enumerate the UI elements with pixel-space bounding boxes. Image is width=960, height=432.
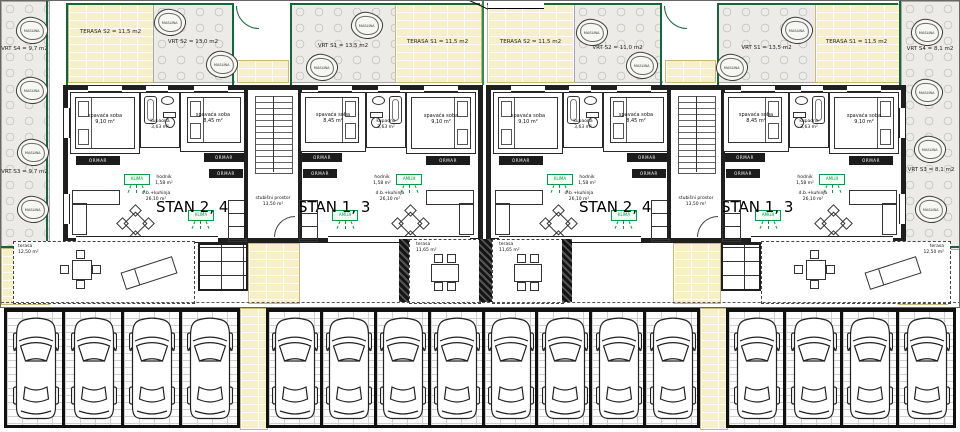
bedroom-large-label: spavaća soba9,10 m²	[830, 113, 898, 125]
car-icon	[488, 317, 534, 421]
staircase-core: stubišni prostor13,50 m²	[667, 90, 725, 238]
parking-stall	[377, 312, 431, 425]
wardrobe: ORMAR	[499, 156, 543, 165]
table-icon	[431, 264, 459, 282]
window	[801, 85, 823, 92]
stairs-icon	[255, 96, 293, 174]
hall-label: hodnik1,58 m²	[567, 175, 607, 186]
garden-label: VRT S4 = 9,7 m2	[1, 46, 48, 52]
boundary-label: MEĐA	[488, 0, 544, 9]
parking-stall	[182, 312, 237, 425]
wardrobe: ORMAR	[204, 153, 244, 162]
hedge	[291, 3, 480, 5]
garden-label: VRT S4 = 8,1 m2	[901, 46, 959, 52]
car-icon	[272, 317, 318, 421]
window	[847, 85, 881, 92]
car-icon	[847, 317, 893, 421]
entry-path	[248, 243, 300, 304]
sink-icon	[584, 96, 597, 105]
staircase-label: stubišni prostor13,50 m²	[248, 196, 298, 208]
party-wall-stub	[479, 239, 492, 302]
boundary-line	[482, 1, 484, 85]
parking-stall	[899, 312, 953, 425]
parking-stall	[538, 312, 592, 425]
bedroom-small-label: spavaća soba8,45 m²	[604, 112, 668, 124]
building-2: spavaća soba9,10 m² kupaona3,63 m² spava…	[486, 85, 906, 243]
apartment-stan-2-4: spavaća soba9,10 m² kupaona3,63 m² spava…	[491, 90, 671, 238]
bathroom-label: kupaona3,63 m²	[564, 119, 602, 131]
courtyard-b2	[661, 4, 718, 81]
car-icon	[187, 317, 233, 421]
garden-label: VRT S3 = 9,7 m2	[0, 169, 49, 175]
wardrobe: ORMAR	[632, 169, 666, 178]
bathroom-label: kupaona3,63 m²	[141, 119, 179, 131]
parking-stall	[843, 312, 900, 425]
terrace-label: TERASA S2 = 11,5 m2	[487, 39, 574, 45]
parking-stall	[786, 312, 843, 425]
bathroom-label: kupaona3,63 m²	[367, 119, 405, 131]
parking-stall	[431, 312, 485, 425]
bathroom: kupaona3,63 m²	[140, 92, 180, 148]
window	[146, 85, 168, 92]
courtyard-b1	[233, 4, 291, 81]
car-icon	[650, 317, 696, 421]
table-icon	[514, 264, 542, 282]
car-icon	[596, 317, 642, 421]
bedroom-small: spavaća soba8,45 m²	[300, 92, 366, 152]
wardrobe: ORMAR	[303, 169, 337, 178]
bedroom-small-label: spavaća soba8,45 m²	[181, 112, 245, 124]
garden-label: VRT S2 = 13,0 m2	[153, 39, 233, 45]
bedroom-large: spavaća soba9,10 m²	[493, 92, 563, 154]
sink-icon	[372, 96, 385, 105]
gate-arc	[664, 6, 687, 29]
table-icon	[806, 260, 826, 280]
sink-icon	[161, 96, 174, 105]
hedge	[660, 3, 662, 85]
staircase-core: stubišni prostor13,50 m²	[244, 90, 302, 238]
sofa-icon	[495, 203, 510, 235]
bathroom: kupaona3,63 m²	[789, 92, 829, 148]
wardrobe: ORMAR	[209, 169, 243, 178]
bedroom-small: spavaća soba8,45 m²	[723, 92, 789, 152]
sofa-icon	[459, 203, 474, 235]
terrace-terasa-s2-b1	[68, 4, 155, 83]
terrace-inner-left: terasa11,65 m²	[409, 239, 481, 304]
terrace-label: terasa11,65 m²	[416, 242, 437, 253]
kitchen-counter-icon	[299, 200, 318, 242]
parking-stall	[485, 312, 539, 425]
building-1: spavaća soba9,10 m² kupaona3,63 m² spava…	[63, 85, 483, 243]
car-icon	[904, 317, 950, 421]
ac-unit: KLIMA	[547, 174, 573, 185]
parking-group	[726, 308, 956, 428]
apartment-stan-1-3: spavaća soba9,10 m² kupaona3,63 m² spava…	[298, 90, 478, 238]
dining-table-icon	[541, 206, 575, 240]
terrace-label: terasa11,65 m²	[499, 242, 520, 253]
apartment-stan-1-3: spavaća soba9,10 m² kupaona3,63 m² spava…	[721, 90, 901, 238]
dining-table-icon	[817, 206, 851, 240]
window	[424, 85, 458, 92]
car-icon	[13, 317, 59, 421]
door-arc	[274, 216, 295, 237]
car-icon	[129, 317, 175, 421]
parking-walkway	[240, 308, 268, 430]
parking-stall	[729, 312, 786, 425]
garden-label: VRT S1 = 13,5 m2	[718, 45, 815, 51]
wardrobe: ORMAR	[302, 153, 342, 162]
kitchen-counter-icon	[722, 200, 741, 242]
sofa-icon	[72, 203, 87, 235]
bedroom-large-label: spavaća soba9,10 m²	[494, 113, 562, 125]
window	[617, 85, 651, 92]
terrace-label: TERASA S2 = 11,5 m2	[68, 29, 153, 35]
car-icon	[326, 317, 372, 421]
ac-unit: KLIMA	[124, 174, 150, 185]
entry-path	[673, 243, 721, 304]
site-dashed-line	[1, 302, 960, 303]
terrace-label: terasa12,50 m²	[18, 244, 39, 255]
wardrobe: ORMAR	[426, 156, 470, 165]
parking-walkway	[700, 308, 728, 430]
terrace-inner-right: terasa11,65 m²	[492, 239, 564, 304]
hedge	[718, 3, 898, 5]
bedroom-small: spavaća soba8,45 m²	[180, 92, 246, 152]
car-icon	[791, 317, 837, 421]
wardrobe: ORMAR	[627, 153, 667, 162]
bedroom-small: spavaća soba8,45 m²	[603, 92, 669, 152]
window	[569, 85, 591, 92]
parking-stall	[269, 312, 323, 425]
hedge	[66, 3, 68, 85]
wall-stub	[399, 239, 409, 302]
terrace-outer-right: terasa12,50 m²	[761, 241, 951, 304]
window	[63, 194, 70, 224]
floor-plan: VRT S4 = 9,7 m2 VRT S3 = 9,7 m2 TERASA S…	[0, 0, 960, 432]
wall-stub	[562, 239, 572, 302]
door-arc	[697, 216, 718, 237]
bathroom: kupaona3,63 m²	[366, 92, 406, 148]
car-icon	[434, 317, 480, 421]
window	[899, 194, 906, 224]
terrace-label: TERASA S1 = 11,5 m2	[395, 39, 480, 45]
parking-group	[266, 308, 700, 428]
staircase-label: stubišni prostor13,50 m²	[671, 196, 721, 208]
bedroom-small-label: spavaća soba8,45 m²	[724, 112, 788, 124]
parking-stall	[592, 312, 646, 425]
apartment-stan-2-4: spavaća soba9,10 m² kupaona3,63 m² spava…	[68, 90, 248, 238]
parking-stall	[7, 312, 65, 425]
entry-rooms	[721, 243, 761, 291]
sink-icon	[795, 96, 808, 105]
lounge-icon	[865, 256, 922, 290]
table-icon	[72, 260, 92, 280]
hedge	[290, 3, 292, 85]
window	[88, 85, 122, 92]
wardrobe: ORMAR	[76, 156, 120, 165]
terrace-label: terasa12,50 m²	[923, 244, 944, 255]
window	[511, 85, 545, 92]
hall-label: hodnik1,58 m²	[144, 175, 184, 186]
parking-stall	[646, 312, 697, 425]
garden-label: VRT S3 = 8,1 m2	[903, 167, 959, 173]
window	[378, 85, 400, 92]
wardrobe: ORMAR	[726, 169, 760, 178]
hedge	[68, 3, 233, 5]
ac-unit: KLIMA	[819, 174, 845, 185]
car-icon	[380, 317, 426, 421]
window	[194, 85, 228, 92]
ac-unit: KLIMA	[396, 174, 422, 185]
wardrobe: ORMAR	[849, 156, 893, 165]
window	[63, 108, 70, 138]
bedroom-large-label: spavaća soba9,10 m²	[407, 113, 475, 125]
garden-label: VRT S2 = 11,0 m2	[574, 45, 661, 51]
bedroom-large: spavaća soba9,10 m²	[829, 92, 899, 154]
terrace-outer-left: terasa12,50 m²	[13, 241, 195, 304]
bathroom-label: kupaona3,63 m²	[790, 119, 828, 131]
entry-rooms	[198, 243, 248, 291]
dining-table-icon	[118, 206, 152, 240]
parking-stall	[323, 312, 377, 425]
site-plan: VRT S4 = 9,7 m2 VRT S3 = 9,7 m2 TERASA S…	[0, 0, 960, 308]
dining-table-icon	[394, 206, 428, 240]
bedroom-large-label: spavaća soba9,10 m²	[71, 113, 139, 125]
window	[899, 108, 906, 138]
car-icon	[542, 317, 588, 421]
window	[741, 85, 775, 92]
parking-group	[4, 308, 240, 428]
sofa-icon	[882, 203, 897, 235]
garden-label: VRT S1 = 13,5 m2	[291, 43, 395, 49]
stairs-icon	[678, 96, 716, 174]
window	[318, 85, 352, 92]
bathroom: kupaona3,63 m²	[563, 92, 603, 148]
lounge-icon	[121, 256, 178, 290]
wardrobe: ORMAR	[725, 153, 765, 162]
parking-stall	[65, 312, 123, 425]
car-icon	[734, 317, 780, 421]
gate-arc	[236, 6, 259, 29]
bedroom-small-label: spavaća soba8,45 m²	[301, 112, 365, 124]
car-icon	[71, 317, 117, 421]
parking-stall	[124, 312, 182, 425]
bedroom-large: spavaća soba9,10 m²	[406, 92, 476, 154]
terrace-label: TERASA S1 = 11,5 m2	[815, 39, 898, 45]
bedroom-large: spavaća soba9,10 m²	[70, 92, 140, 154]
